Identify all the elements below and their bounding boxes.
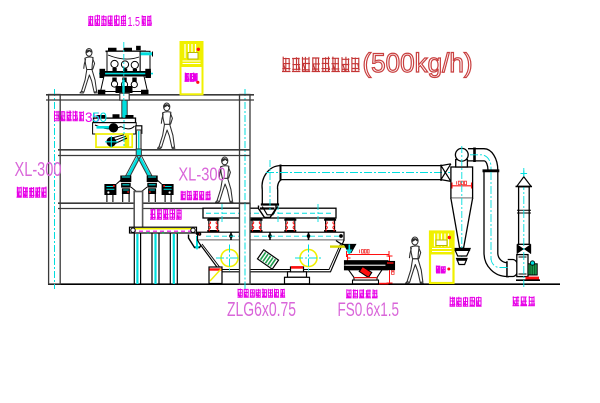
svg-text:1.5: 1.5 (128, 14, 141, 29)
svg-text:(500kg/h): (500kg/h) (363, 48, 473, 78)
svg-text:ZLG6x0.75: ZLG6x0.75 (227, 299, 296, 321)
svg-text:FS0.6x1.5: FS0.6x1.5 (338, 300, 400, 321)
svg-text:50: 50 (92, 110, 107, 125)
svg-text:XL-300: XL-300 (15, 159, 62, 181)
svg-text:XL-300: XL-300 (178, 164, 225, 185)
